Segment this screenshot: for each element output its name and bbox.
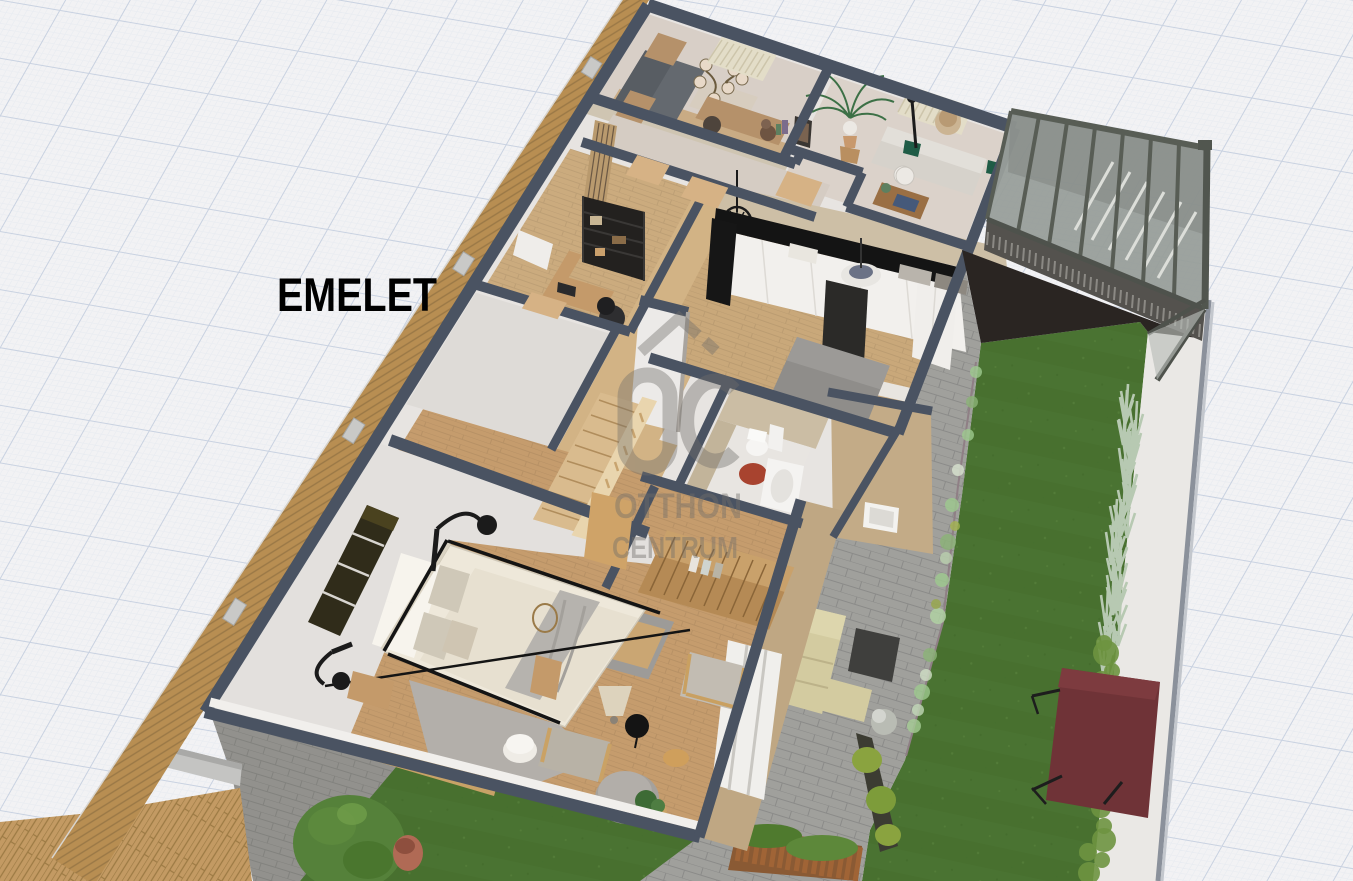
svg-text:OTTHON: OTTHON xyxy=(614,487,742,526)
svg-text:EMELET: EMELET xyxy=(277,268,437,321)
svg-text:CENTRUM: CENTRUM xyxy=(612,530,738,565)
